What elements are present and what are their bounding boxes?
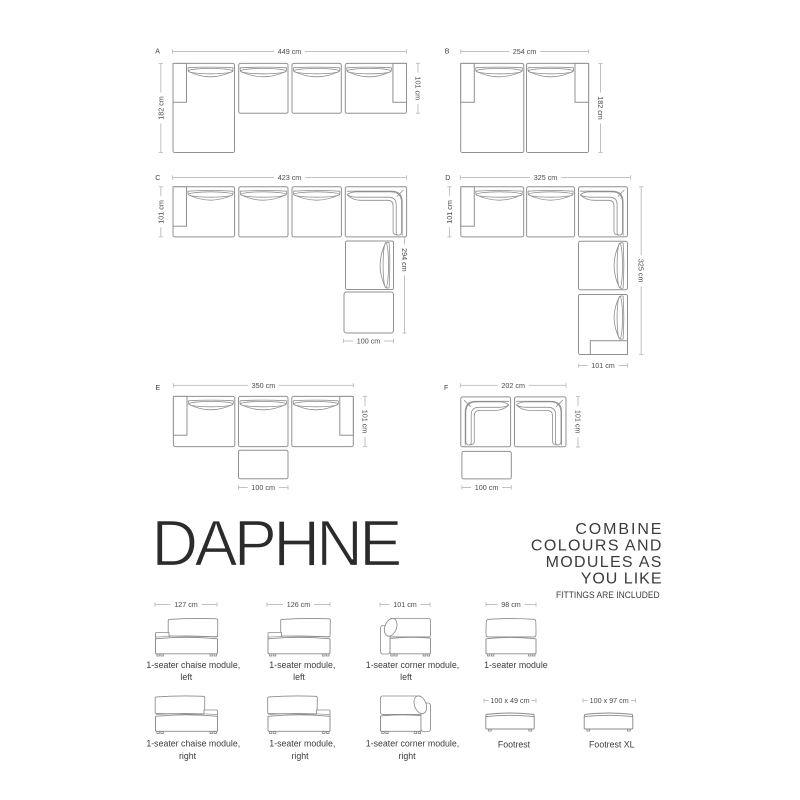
svg-text:MODULES AS: MODULES AS	[546, 554, 663, 571]
svg-text:right: right	[291, 751, 309, 761]
svg-text:449 cm: 449 cm	[278, 47, 302, 56]
svg-text:101 cm: 101 cm	[573, 410, 582, 434]
svg-text:1-seater module: 1-seater module	[484, 660, 548, 670]
svg-text:left: left	[180, 672, 192, 682]
svg-text:126 cm: 126 cm	[287, 600, 311, 609]
svg-text:A: A	[155, 48, 160, 55]
svg-text:1-seater corner module,: 1-seater corner module,	[366, 660, 459, 670]
svg-text:101 cm: 101 cm	[156, 200, 165, 224]
svg-text:left: left	[400, 672, 412, 682]
svg-text:F: F	[444, 385, 448, 392]
svg-text:1-seater module,: 1-seater module,	[269, 660, 335, 670]
svg-text:1-seater module,: 1-seater module,	[269, 738, 335, 748]
svg-text:Footrest XL: Footrest XL	[589, 740, 635, 750]
svg-text:325 cm: 325 cm	[637, 259, 646, 283]
svg-text:100 cm: 100 cm	[475, 483, 499, 492]
svg-text:294 cm: 294 cm	[400, 248, 409, 272]
svg-text:E: E	[156, 385, 161, 392]
svg-text:100 x 49 cm: 100 x 49 cm	[490, 696, 529, 705]
svg-text:100 x 97 cm: 100 x 97 cm	[590, 696, 629, 705]
svg-text:127 cm: 127 cm	[174, 600, 198, 609]
svg-text:FITTINGS ARE INCLUDED: FITTINGS ARE INCLUDED	[556, 590, 660, 601]
svg-text:right: right	[398, 751, 416, 761]
svg-text:C: C	[155, 175, 160, 182]
svg-text:1-seater corner module,: 1-seater corner module,	[366, 738, 459, 748]
svg-text:left: left	[293, 672, 305, 682]
svg-text:325 cm: 325 cm	[534, 173, 558, 182]
svg-text:254 cm: 254 cm	[513, 47, 537, 56]
svg-text:101 cm: 101 cm	[360, 410, 369, 434]
svg-text:Footrest: Footrest	[498, 740, 531, 750]
svg-text:DAPHNE: DAPHNE	[152, 508, 401, 580]
svg-text:182 cm: 182 cm	[596, 96, 605, 120]
svg-text:182 cm: 182 cm	[156, 96, 165, 120]
svg-text:1-seater chaise module,: 1-seater chaise module,	[146, 738, 240, 748]
svg-text:D: D	[445, 175, 450, 182]
svg-text:423 cm: 423 cm	[278, 173, 302, 182]
svg-text:100 cm: 100 cm	[357, 337, 381, 346]
svg-text:COMBINE: COMBINE	[575, 521, 663, 538]
svg-text:101 cm: 101 cm	[393, 600, 417, 609]
svg-text:100 cm: 100 cm	[251, 483, 275, 492]
svg-text:101 cm: 101 cm	[413, 77, 422, 101]
svg-text:YOU LIKE: YOU LIKE	[581, 571, 663, 588]
svg-text:98 cm: 98 cm	[501, 600, 521, 609]
svg-text:101 cm: 101 cm	[445, 200, 454, 224]
svg-text:350 cm: 350 cm	[252, 381, 276, 390]
svg-text:COLOURS AND: COLOURS AND	[531, 538, 663, 555]
svg-text:B: B	[445, 48, 450, 55]
svg-text:202 cm: 202 cm	[501, 381, 525, 390]
svg-text:1-seater chaise module,: 1-seater chaise module,	[146, 660, 240, 670]
svg-text:101 cm: 101 cm	[591, 361, 615, 370]
svg-text:right: right	[179, 751, 197, 761]
